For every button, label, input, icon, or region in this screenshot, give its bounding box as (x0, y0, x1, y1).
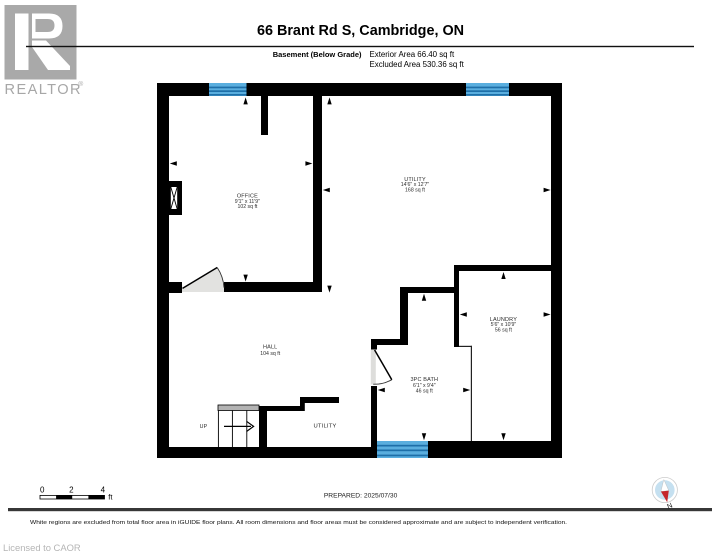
svg-text:Basement (Below Grade): Basement (Below Grade) (273, 50, 362, 59)
svg-text:168 sq ft: 168 sq ft (405, 187, 425, 193)
svg-text:®: ® (78, 80, 83, 88)
svg-text:4: 4 (101, 486, 106, 495)
svg-text:UP: UP (200, 424, 208, 430)
svg-text:Licensed to CAOR: Licensed to CAOR (3, 542, 81, 553)
svg-text:102 sq ft: 102 sq ft (237, 204, 257, 210)
svg-text:Exterior Area 66.40 sq ft: Exterior Area 66.40 sq ft (370, 50, 455, 59)
svg-text:PREPARED: 2025/07/30: PREPARED: 2025/07/30 (324, 492, 398, 499)
svg-text:HALL: HALL (263, 345, 277, 351)
svg-text:104 sq ft: 104 sq ft (260, 351, 280, 357)
svg-text:0: 0 (40, 486, 45, 495)
svg-text:UTILITY: UTILITY (314, 423, 337, 429)
svg-text:REALTOR: REALTOR (5, 82, 82, 98)
svg-text:66 Brant Rd S, Cambridge, ON: 66 Brant Rd S, Cambridge, ON (257, 23, 464, 39)
svg-text:2: 2 (69, 486, 74, 495)
svg-text:46 sq ft: 46 sq ft (416, 389, 434, 395)
svg-text:Excluded Area 530.36 sq ft: Excluded Area 530.36 sq ft (370, 60, 465, 69)
svg-text:56 sq ft: 56 sq ft (495, 327, 513, 333)
svg-text:White regions are excluded fro: White regions are excluded from total fl… (30, 520, 567, 526)
